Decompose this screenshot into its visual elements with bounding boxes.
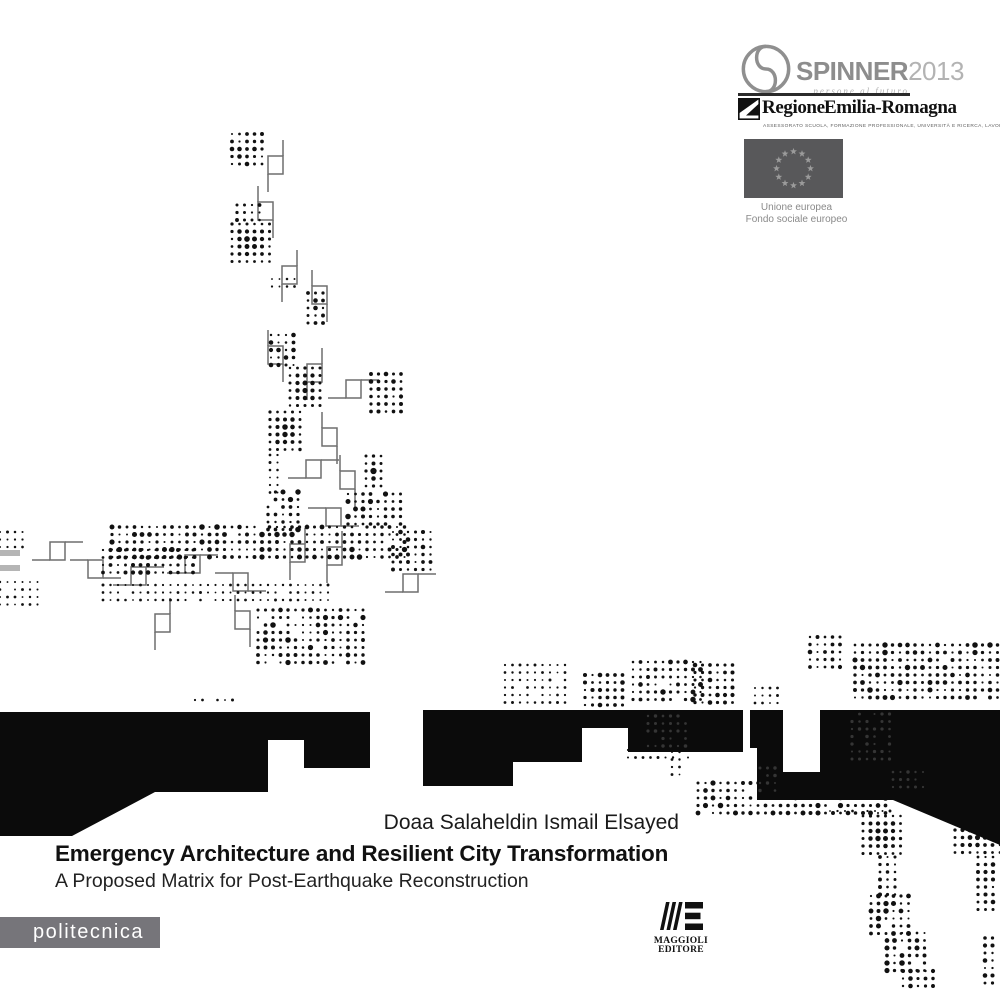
- regione-mark-icon: [738, 98, 760, 120]
- regione-name: Regione Emilia-Romagna: [762, 97, 957, 119]
- politecnica-series-bar: politecnica: [0, 917, 160, 948]
- spinner-swirl-icon: [739, 42, 793, 96]
- maggioli-line2: EDITORE: [649, 946, 713, 955]
- eu-flag-icon: [744, 139, 843, 198]
- spinner-logo: SPINNER2013 persone al futuro: [739, 42, 909, 98]
- page-title: Emergency Architecture and Resilient Cit…: [55, 841, 668, 867]
- maggioli-wordmark: MAGGIOLI EDITORE: [649, 937, 713, 955]
- eu-caption-line2: Fondo sociale europeo: [740, 214, 853, 226]
- author-name: Doaa Salaheldin Ismail Elsayed: [0, 811, 679, 835]
- spinner-year: 2013: [908, 56, 964, 86]
- eu-caption-line1: Unione europea: [740, 202, 853, 214]
- page-subtitle: A Proposed Matrix for Post-Earthquake Re…: [55, 870, 529, 893]
- regione-rule: [738, 93, 910, 96]
- maggioli-editore-logo: MAGGIOLI EDITORE: [649, 902, 713, 955]
- spinner-wordmark: SPINNER2013: [796, 56, 964, 87]
- maggioli-monogram-icon: [658, 902, 704, 930]
- eu-caption: Unione europea Fondo sociale europeo: [740, 202, 853, 226]
- book-cover: SPINNER2013 persone al futuro Regione Em…: [0, 0, 1000, 990]
- regione-subtitle: Assessorato Scuola, Formazione Professio…: [763, 124, 1000, 129]
- spinner-name: SPINNER: [796, 56, 908, 86]
- politecnica-label: politecnica: [0, 917, 160, 947]
